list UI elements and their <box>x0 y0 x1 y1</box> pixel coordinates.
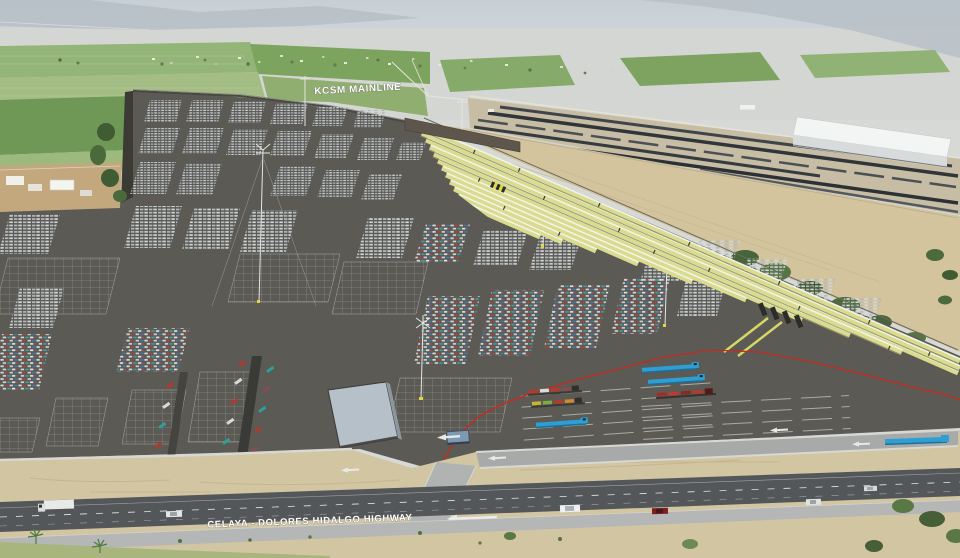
gatehouse-building <box>328 382 402 448</box>
bus <box>740 105 755 110</box>
scene-canvas: CELAYA - DOLORES HIDALGO HIGHWAY <box>0 0 960 558</box>
aerial-rendering: CELAYA - DOLORES HIDALGO HIGHWAY <box>0 0 960 558</box>
farm-building <box>80 190 92 196</box>
locomotive <box>488 109 494 112</box>
farm-building <box>28 184 42 191</box>
farm-building <box>6 176 24 185</box>
farm-compound <box>0 162 122 212</box>
farm-building <box>50 180 74 190</box>
